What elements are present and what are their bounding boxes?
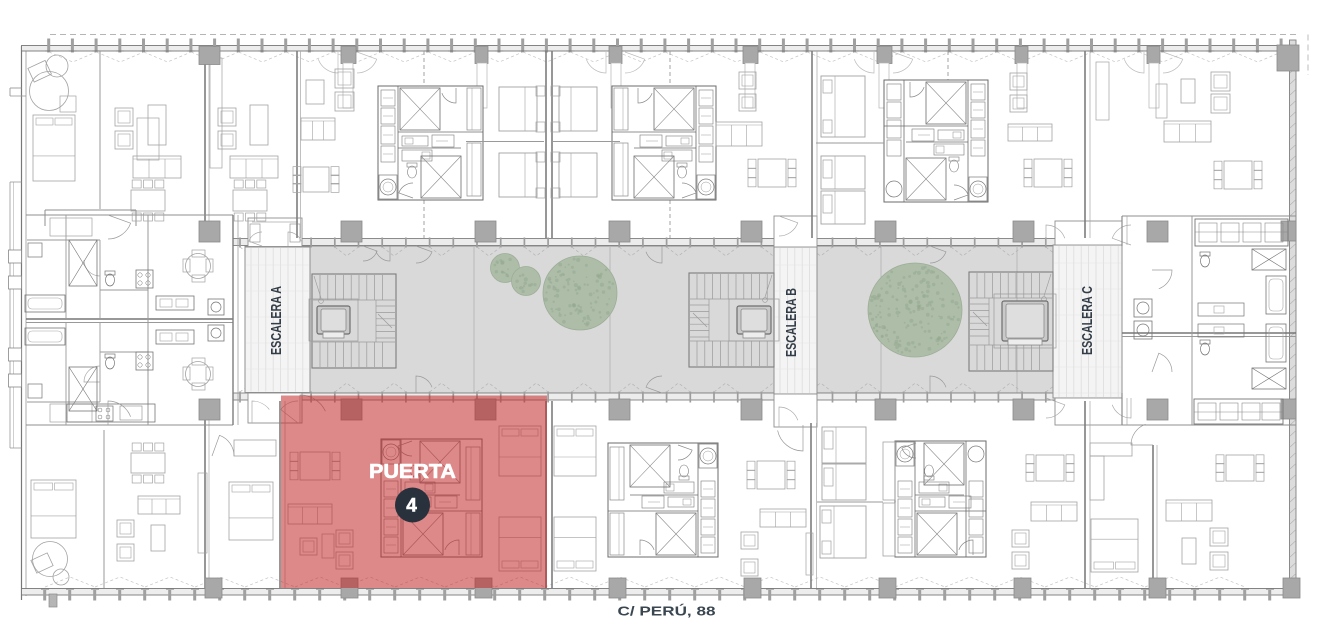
svg-text:4: 4 <box>406 496 417 517</box>
svg-text:C/ PERÚ, 88: C/ PERÚ, 88 <box>618 604 716 619</box>
svg-text:ESCALERA C: ESCALERA C <box>1080 286 1096 355</box>
svg-text:ESCALERA A: ESCALERA A <box>269 286 285 355</box>
svg-text:ESCALERA B: ESCALERA B <box>784 288 800 357</box>
svg-text:PUERTA: PUERTA <box>369 461 456 483</box>
